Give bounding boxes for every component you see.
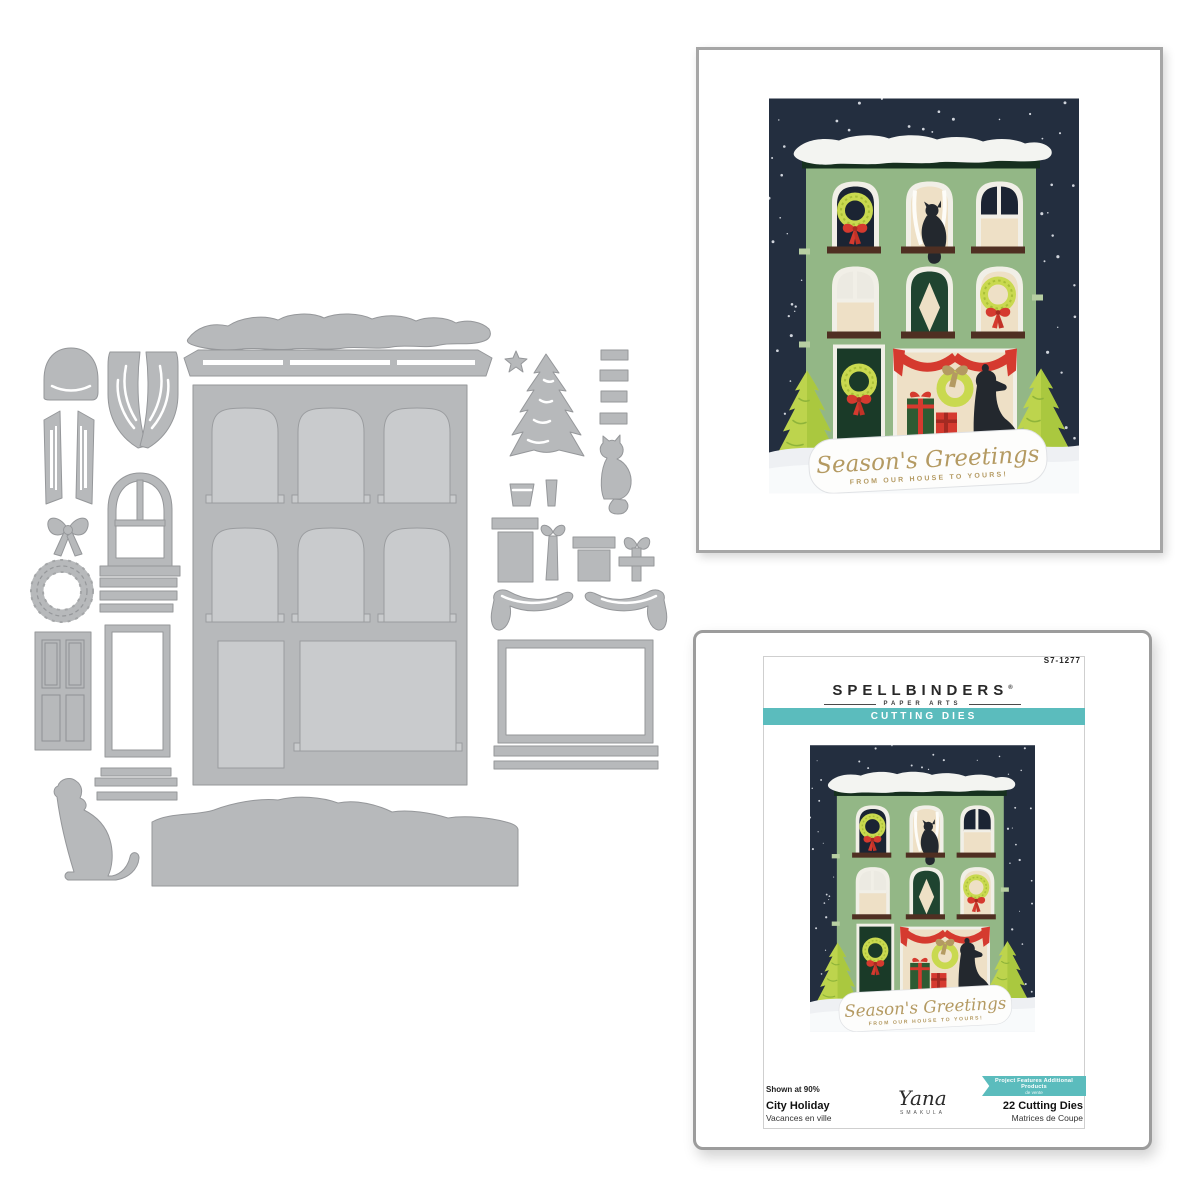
category-banner: CUTTING DIES [763, 708, 1085, 725]
die-curtain-panel-right [76, 411, 94, 504]
die-arched-window-frame [100, 473, 180, 576]
die-tall-gift-box [492, 518, 538, 582]
die-curtain-panel-left [44, 411, 62, 504]
brand-tagline: PAPER ARTS [696, 701, 1149, 707]
tagline-rule-right [969, 704, 1021, 705]
die-storefront-window-frame [498, 640, 653, 743]
tagline-rule-left [824, 704, 876, 705]
die-stoop-bar [97, 792, 177, 800]
brand-text: SPELLBINDERS [832, 682, 1008, 699]
contents-block: 22 Cutting Dies Matrices de Coupe [1003, 1100, 1083, 1123]
product-code: S7-1277 [763, 656, 1081, 665]
die-star [505, 351, 527, 372]
die-wreath [31, 560, 93, 622]
die-gift-ribbon-bow [541, 525, 565, 580]
die-window-shade-dome [44, 348, 98, 400]
die-square-gift-box [573, 537, 615, 581]
die-storefront-bar [494, 761, 658, 769]
die-blind-slats [600, 350, 628, 424]
die-cornice [184, 350, 492, 376]
die-stoop-platform [95, 768, 177, 786]
die-bow-cross-ribbon [619, 538, 654, 581]
brand-logo: SPELLBINDERS® PAPER ARTS [696, 682, 1149, 707]
product-package: S7-1277 SPELLBINDERS® PAPER ARTS CUTTING… [693, 630, 1152, 1150]
die-storefront-sill [494, 746, 658, 756]
brand-wordmark: SPELLBINDERS® [696, 682, 1149, 699]
die-set-illustration [0, 300, 690, 900]
die-paneled-door [35, 632, 91, 750]
die-swag-garland-left [491, 590, 573, 630]
holiday-card-large [769, 98, 1079, 494]
die-roof-snow [187, 314, 490, 350]
contents-count: 22 Cutting Dies [1003, 1100, 1083, 1112]
die-planter-pot [510, 484, 534, 506]
die-ribbon-bow [48, 518, 88, 556]
die-steps [100, 578, 177, 612]
tagline-text: PAPER ARTS [883, 701, 961, 707]
die-building-facade [193, 385, 467, 785]
die-curtain-pair [108, 352, 178, 448]
contents-count-fr: Matrices de Coupe [1003, 1113, 1083, 1123]
die-ground-snow [152, 797, 518, 886]
die-sitting-cat [600, 435, 631, 514]
holiday-card-small [810, 745, 1035, 1032]
framed-card-preview [696, 47, 1163, 553]
die-tree-trunk [546, 480, 557, 506]
die-window-frame [105, 625, 170, 757]
die-swag-garland-right [585, 590, 667, 630]
registered-mark: ® [1008, 685, 1012, 691]
